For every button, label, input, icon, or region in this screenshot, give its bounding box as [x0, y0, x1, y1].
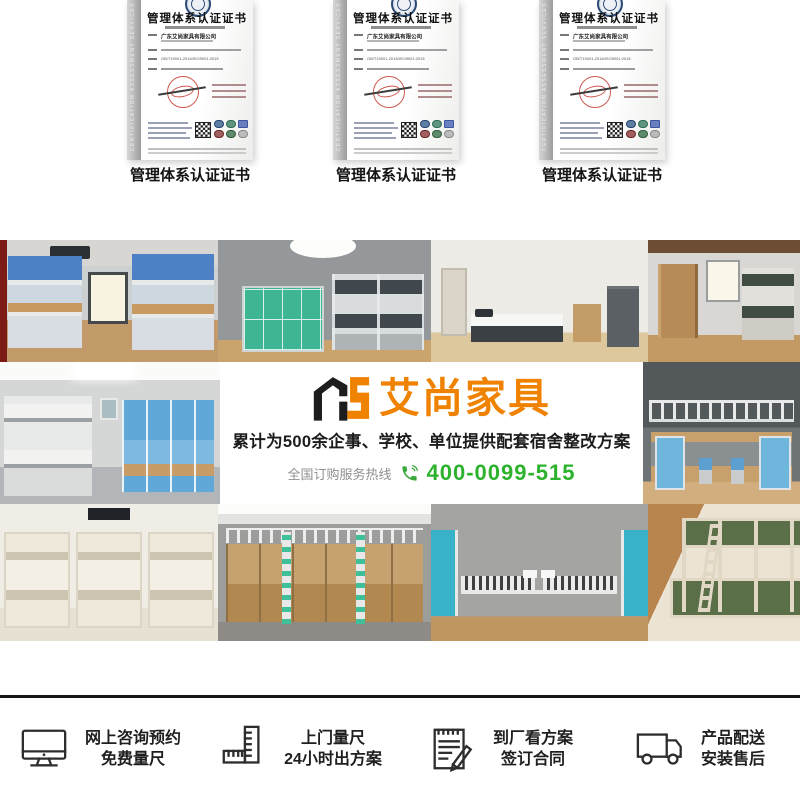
- gallery-photo-single-bed-study-room: [431, 240, 648, 362]
- certificate-body: 管理体系认证证书 广东艾尚家具有限公司 GB/T19001-2016/ISO90…: [347, 0, 459, 160]
- certificate-standard: GB/T19001-2016/ISO9001:2015: [161, 57, 219, 62]
- services-section: 网上咨询预约 免费量尺 上门量尺 24小时出方案: [0, 698, 800, 800]
- qr-code: [195, 122, 211, 138]
- service-item-contract: 到厂看方案 签订合同: [400, 724, 600, 774]
- certificate-caption-1: 管理体系认证证书: [127, 164, 253, 185]
- accreditation-badges: [214, 120, 248, 138]
- hotline-number[interactable]: 400-0099-515: [427, 460, 576, 486]
- gallery-photo-twin-beds-blue-wardrobe-room: [431, 504, 648, 641]
- service-item-online-consult: 网上咨询预约 免费量尺: [0, 724, 200, 774]
- service-text: 网上咨询预约 免费量尺: [85, 728, 181, 770]
- certificate-side-text: CERTIFICATION ASSESSMENT SERVICES: [542, 2, 548, 151]
- gallery-photo-loft-desk-wardrobe-room: [218, 504, 431, 641]
- gallery-section: 艾尚家具 累计为500余企事、学校、单位提供配套宿舍整改方案 全国订购服务热线 …: [0, 240, 800, 641]
- brand-banner: 艾尚家具 累计为500余企事、学校、单位提供配套宿舍整改方案 全国订购服务热线 …: [220, 362, 643, 504]
- service-item-delivery: 产品配送 安装售后: [600, 724, 800, 774]
- certificate-side-text: CERTIFICATION ASSESSMENT SERVICES: [130, 2, 136, 151]
- certificate-3: CERTIFICATION ASSESSMENT SERVICES 管理体系认证…: [539, 0, 665, 160]
- certificate-side-band: CERTIFICATION ASSESSMENT SERVICES: [539, 0, 553, 160]
- certificate-side-band: CERTIFICATION ASSESSMENT SERVICES: [127, 0, 141, 160]
- truck-icon: [635, 724, 685, 774]
- red-seal-icon: [373, 76, 405, 108]
- certificate-2: CERTIFICATION ASSESSMENT SERVICES 管理体系认证…: [333, 0, 459, 160]
- accreditation-badges: [420, 120, 454, 138]
- page: CERTIFICATION ASSESSMENT SERVICES 管理体系认证…: [0, 0, 800, 800]
- gallery-photo-dorm-blue-bunk-desk-room: [0, 240, 218, 362]
- hotline-row: 全国订购服务热线 400-0099-515: [220, 460, 643, 486]
- red-seal-icon: [167, 76, 199, 108]
- gallery-photo-locker-and-bunk-room: [218, 240, 431, 362]
- monitor-icon: [19, 724, 69, 774]
- brand-logo: 艾尚家具: [220, 362, 643, 421]
- hotline-label: 全国订购服务热线: [287, 464, 391, 483]
- certificate-standard: GB/T19001-2016/ISO9001:2015: [573, 57, 631, 62]
- gallery-photo-triple-bunk-room: [0, 504, 218, 641]
- gallery-photo-loft-bed-desk-room: [643, 362, 800, 504]
- certificates-section: CERTIFICATION ASSESSMENT SERVICES 管理体系认证…: [0, 0, 800, 240]
- certificate-body: 管理体系认证证书 广东艾尚家具有限公司 GB/T19001-2016/ISO90…: [141, 0, 253, 160]
- service-text: 到厂看方案 签订合同: [493, 728, 573, 770]
- contract-icon: [427, 724, 477, 774]
- certificate-body: 管理体系认证证书 广东艾尚家具有限公司 GB/T19001-2016/ISO90…: [553, 0, 665, 160]
- red-seal-icon: [579, 76, 611, 108]
- banner-tagline: 累计为500余企事、学校、单位提供配套宿舍整改方案: [220, 428, 643, 452]
- certificate-title: 管理体系认证证书: [141, 10, 253, 26]
- gallery-photo-grey-bunk-blue-wardrobe-room: [0, 362, 220, 504]
- certificate-caption-2: 管理体系认证证书: [333, 164, 459, 185]
- service-text: 上门量尺 24小时出方案: [284, 728, 382, 770]
- qr-code: [401, 122, 417, 138]
- certificate-caption-3: 管理体系认证证书: [539, 164, 665, 185]
- service-item-measure: 上门量尺 24小时出方案: [200, 724, 400, 774]
- qr-code: [607, 122, 623, 138]
- certificate-side-text: CERTIFICATION ASSESSMENT SERVICES: [336, 2, 342, 151]
- as-logo-icon: [312, 375, 370, 421]
- certificate-title: 管理体系认证证书: [553, 10, 665, 26]
- certificate-side-band: CERTIFICATION ASSESSMENT SERVICES: [333, 0, 347, 160]
- phone-icon: [400, 464, 419, 483]
- certificate-title: 管理体系认证证书: [347, 10, 459, 26]
- certificate-standard: GB/T19001-2016/ISO9001:2015: [367, 57, 425, 62]
- gallery-photo-green-steel-bunk-room: [648, 504, 800, 641]
- gallery-photo-wardrobe-bunk-room: [648, 240, 800, 362]
- accreditation-badges: [626, 120, 660, 138]
- brand-name: 艾尚家具: [379, 378, 551, 419]
- ruler-icon: [218, 724, 268, 774]
- service-text: 产品配送 安装售后: [701, 728, 765, 770]
- certificate-1: CERTIFICATION ASSESSMENT SERVICES 管理体系认证…: [127, 0, 253, 160]
